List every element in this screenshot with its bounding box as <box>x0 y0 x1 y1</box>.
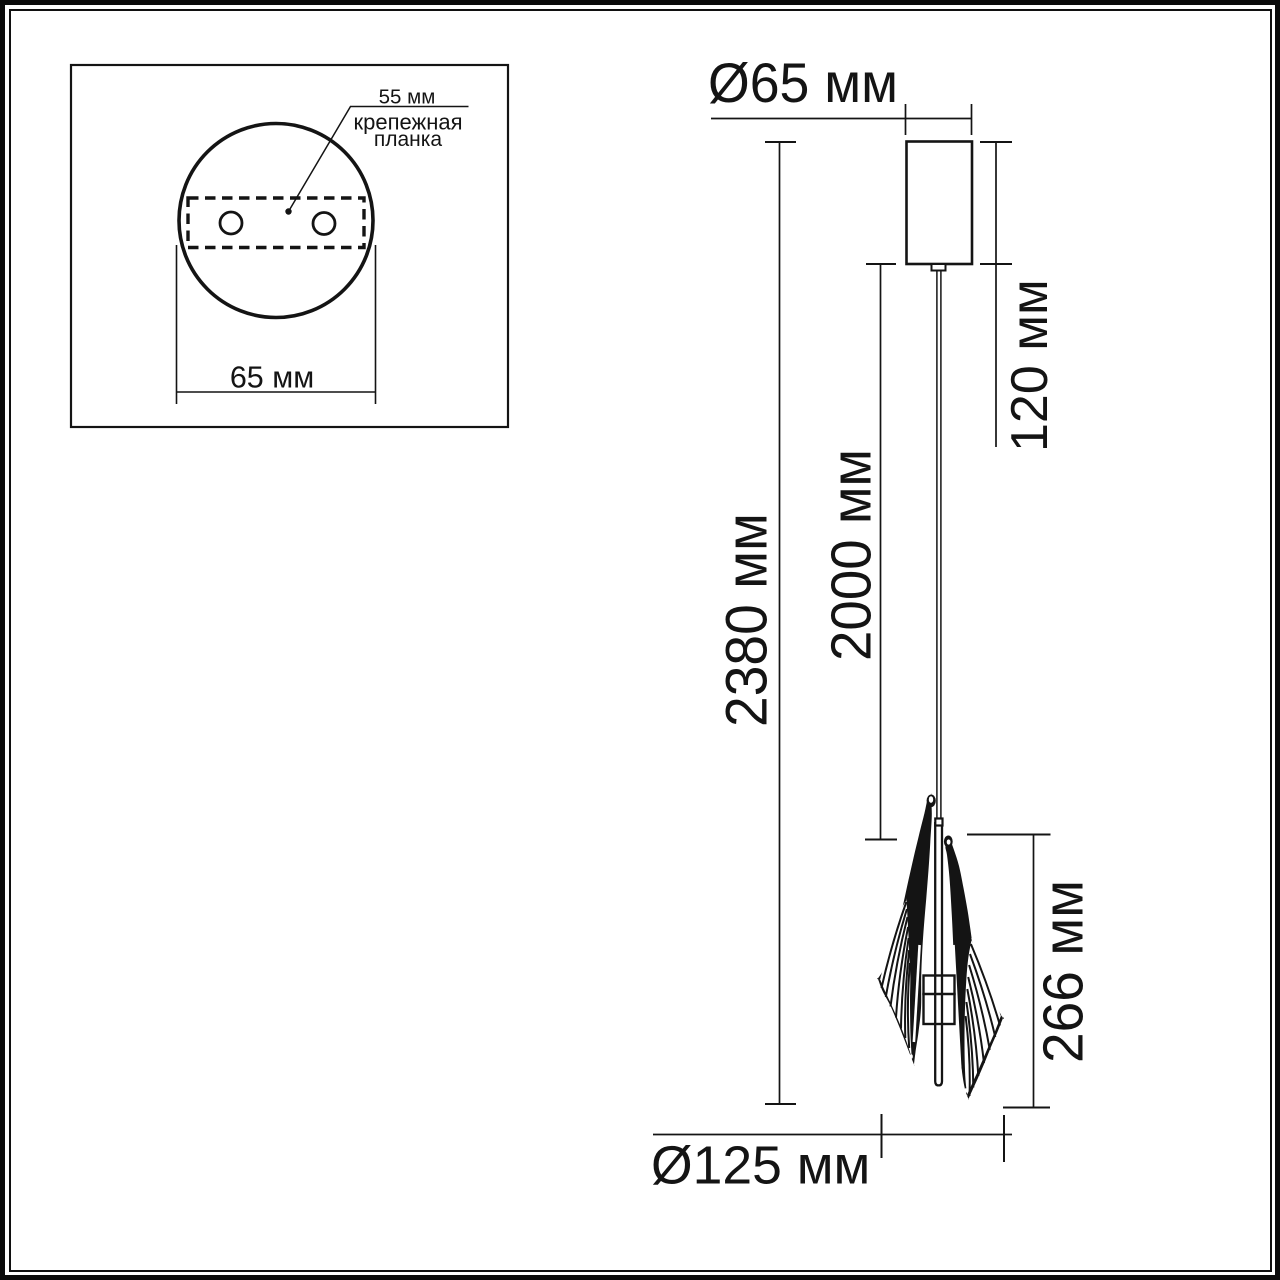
svg-text:2380 мм: 2380 мм <box>715 513 780 727</box>
svg-text:120 мм: 120 мм <box>1001 279 1059 452</box>
svg-text:55 мм: 55 мм <box>379 86 436 109</box>
svg-text:Ø125 мм: Ø125 мм <box>651 1137 870 1196</box>
svg-text:65 мм: 65 мм <box>230 361 314 395</box>
svg-text:266 мм: 266 мм <box>1032 880 1095 1063</box>
svg-text:Ø65 мм: Ø65 мм <box>708 52 898 114</box>
svg-text:планка: планка <box>374 128 443 151</box>
svg-text:2000 мм: 2000 мм <box>820 449 883 661</box>
